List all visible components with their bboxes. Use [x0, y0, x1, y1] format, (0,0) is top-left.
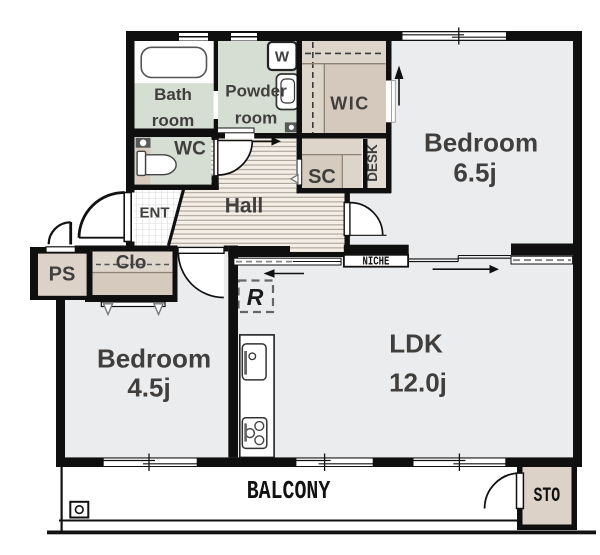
- svg-text:STO: STO: [533, 485, 560, 508]
- svg-text:12.0j: 12.0j: [389, 368, 447, 398]
- svg-text:PS: PS: [49, 264, 76, 286]
- svg-text:WC: WC: [174, 139, 206, 160]
- svg-text:W: W: [275, 49, 290, 66]
- svg-text:DESK: DESK: [365, 144, 380, 182]
- svg-text:WIC: WIC: [330, 94, 370, 114]
- svg-text:Bath: Bath: [154, 85, 192, 104]
- svg-text:Powder: Powder: [225, 82, 287, 101]
- svg-text:room: room: [152, 111, 195, 130]
- svg-text:SC: SC: [308, 166, 336, 188]
- svg-text:R: R: [247, 284, 264, 310]
- svg-text:Hall: Hall: [225, 195, 264, 218]
- svg-text:Bedroom: Bedroom: [97, 344, 211, 374]
- svg-text:BALCONY: BALCONY: [247, 477, 331, 506]
- svg-text:6.5j: 6.5j: [453, 158, 496, 188]
- svg-text:Bedroom: Bedroom: [424, 128, 538, 158]
- svg-text:4.5j: 4.5j: [127, 373, 170, 403]
- svg-text:ENT: ENT: [140, 205, 170, 222]
- svg-text:LDK: LDK: [389, 329, 443, 359]
- svg-text:Clo: Clo: [116, 253, 147, 274]
- svg-text:NICHE: NICHE: [363, 256, 390, 269]
- svg-text:room: room: [235, 109, 278, 128]
